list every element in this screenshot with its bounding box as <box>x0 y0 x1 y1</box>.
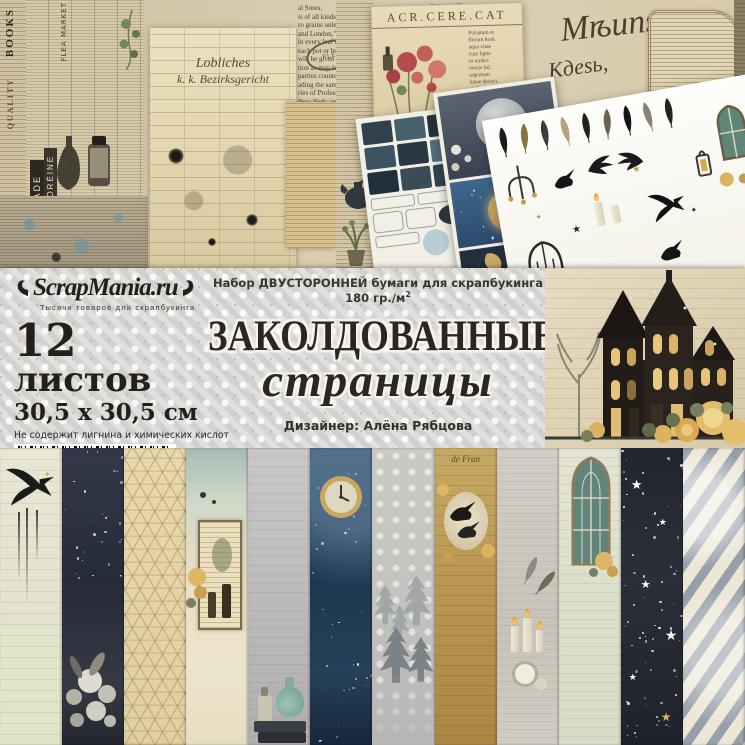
info-band: ScrapMania.ru Тысячи товаров для скрапбу… <box>0 268 745 448</box>
strip-gothic-window <box>559 448 621 745</box>
strip-raven-ink: ✦ <box>0 448 62 745</box>
clock-face-icon <box>318 474 364 520</box>
strip-celestial-clock <box>310 448 372 745</box>
strip-diagonal-stripes <box>683 448 745 745</box>
crow-sticker <box>550 168 583 212</box>
distressed-paper-patch <box>0 196 148 268</box>
lantern-sticker <box>690 146 718 187</box>
gothic-house-illustration <box>545 268 745 448</box>
gothic-arch-cage-sticker <box>522 237 574 268</box>
ink-blot <box>208 238 216 246</box>
product-cover: BOOKS QUALITY FLEA MARKET NIGHTSHADE CRÈ… <box>0 0 745 745</box>
strip-star-lattice <box>124 448 186 745</box>
vintage-ticket <box>286 102 336 248</box>
strip-potion-books <box>248 448 310 745</box>
crows-in-nest-icon <box>447 500 487 546</box>
sheet-count: 12 листов <box>14 318 214 397</box>
rose-cluster-sticker <box>718 168 745 192</box>
flying-crow-sticker <box>646 183 694 241</box>
product-title-line2: страницы <box>208 354 548 408</box>
logo-flourish-icon <box>14 278 30 298</box>
potion-bottles-books <box>248 665 310 745</box>
ledger-script-line2: k. k. Bezirksgericht <box>150 72 296 87</box>
ink-blot <box>246 214 258 226</box>
logo-flourish-icon <box>181 278 197 298</box>
strip-night-bouquet <box>62 448 124 745</box>
flying-raven-icon <box>6 460 58 516</box>
strip-starry-night: ★ ★ ★ ★ ★ ★ <box>621 448 683 745</box>
ephemera-collage: BOOKS QUALITY FLEA MARKET NIGHTSHADE CRÈ… <box>0 0 745 268</box>
vertical-label-flea-market: FLEA MARKET <box>60 2 68 61</box>
stained-glass-window-icon <box>569 454 613 566</box>
strip-french-text: de Fran <box>435 454 497 464</box>
pine-forest-silhouette <box>372 575 434 745</box>
chandelier-sticker <box>500 161 541 210</box>
product-title-line1: ЗАКОЛДОВАННЫЕ <box>208 311 548 362</box>
brand-logo: ScrapMania.ru <box>33 274 178 302</box>
handwritten-ledger-sheet: Lobliches k. k. Bezirksgericht <box>150 28 296 268</box>
acid-free-note: Не содержит лигнина и химических кислот <box>14 430 214 441</box>
strip-crow-nest: de Fran <box>435 448 497 745</box>
strip-misty-forest <box>372 448 434 745</box>
strip-candles-feathers <box>497 448 559 745</box>
strip-botanical-frame <box>186 448 248 745</box>
gothic-house-panel <box>545 268 745 448</box>
product-description: Набор ДВУСТОРОННЕЙ бумаги для скрапбукин… <box>208 276 548 305</box>
title-block: Набор ДВУСТОРОННЕЙ бумаги для скрапбукин… <box>208 276 548 433</box>
designer-credit: Дизайнер: Алёна Рябцова <box>208 418 548 433</box>
gothic-window-sticker <box>711 99 745 162</box>
ink-blot <box>168 148 184 164</box>
vertical-label-quality: QUALITY <box>6 78 15 129</box>
ledger-script-line1: Lobliches <box>150 56 296 72</box>
crow-sticker <box>656 238 690 268</box>
acr-sheet-title: ACR.CERE.CAT <box>371 3 522 29</box>
vertical-label-books: BOOKS <box>4 8 16 57</box>
ivy-sprig-icon <box>112 10 152 70</box>
brand-tagline: Тысячи товаров для скрапбукинга <box>40 303 214 312</box>
white-bouquet <box>62 635 124 745</box>
sheet-size: 30,5 x 30,5 см <box>14 399 214 426</box>
candle-pair-sticker <box>594 199 623 231</box>
ink-bottles-icon <box>52 122 114 194</box>
paper-strips-preview: ✦ <box>0 448 745 745</box>
handwritten-flourish-line2: Кдеѕь, <box>546 50 609 84</box>
